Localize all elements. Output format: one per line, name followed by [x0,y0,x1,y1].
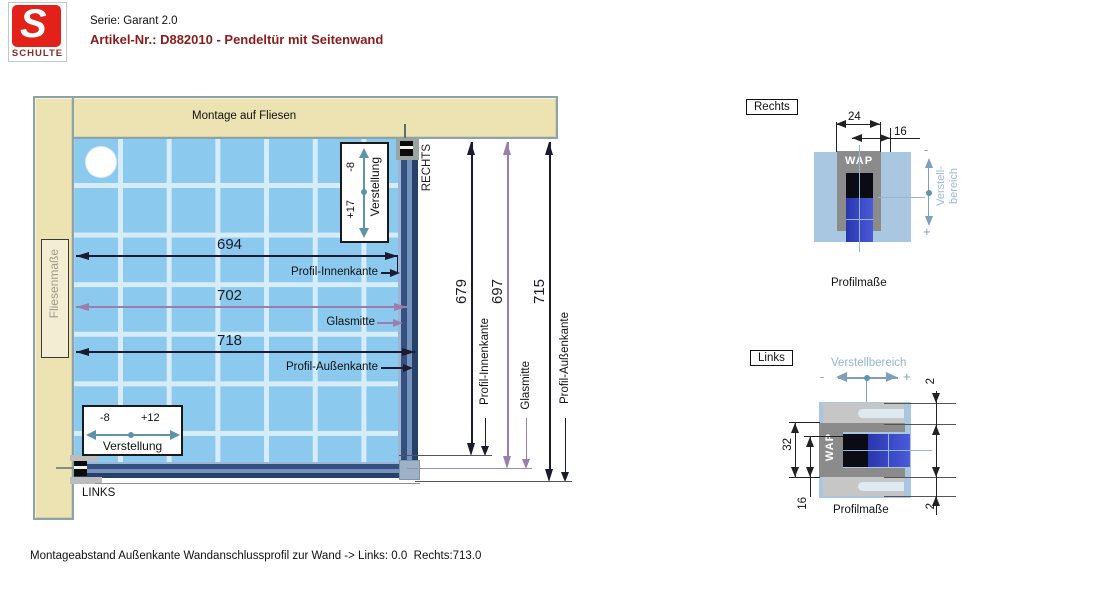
range-minus: - [820,369,824,384]
adjust-dot-icon [361,189,367,195]
dim-width-outer-line [76,351,415,353]
adjustment-box-bottom-profile: -8 +12 Verstellung [82,405,183,456]
range-plus: + [923,224,931,239]
dim-height-inner-label: Profil-Innenkante [479,318,491,405]
top-wall: Montage auf Fliesen [33,96,558,139]
dim-width-outer-label: Profil-Außenkante [246,361,378,373]
adjust-label: Verstellung [368,157,382,216]
adjust-dot-icon [128,432,134,438]
adjust-label: Verstellung [84,439,181,453]
extension-line [884,477,956,478]
side-label-rechts: RECHTS [421,144,433,191]
mounting-distance-note: Montageabstand Außenkante Wandanschlussp… [30,550,481,562]
drawing-page: S SCHULTE Serie: Garant 2.0 Artikel-Nr.:… [0,0,1116,592]
center-line [888,434,889,467]
range-connector-line [878,197,925,198]
center-line [846,219,873,220]
dim-width-glass-value: 702 [217,287,242,304]
dim-gap-top-value: 2 [925,378,937,384]
wall-profile-bottom [74,462,419,478]
arrow-down-icon [359,228,369,238]
dim-arrowhead-icon [76,252,89,260]
arrow-right-icon [393,319,403,327]
dim-arrowhead-icon [467,142,475,155]
dim-tick [890,128,891,152]
extension-line [884,496,956,497]
arrow-up-icon [925,158,933,168]
dim-arrowhead-icon [545,142,553,155]
dim-arrowhead-icon [76,303,89,311]
dim-extension [810,477,811,497]
label-arrow-line [381,272,390,274]
dim-arrowhead-icon [880,134,890,142]
tile-dimension-box: Fliesenmaße [41,239,69,358]
dim-arrowhead-icon [870,120,880,128]
extension-line [399,455,492,456]
dim-gap-bottom-value: 2 [925,503,937,509]
dim-16-value: 16 [797,497,809,510]
center-line [859,145,860,252]
dim-width-glass-label: Glasmitte [260,316,375,328]
dim-arrowhead-icon [791,423,799,433]
left-clamp-icon [74,461,87,476]
schulte-s-icon: S [12,5,61,47]
dim-arrowhead-icon [394,303,407,311]
dim-arrowhead-icon [806,437,814,447]
top-wall-label: Montage auf Fliesen [192,110,296,122]
dim-arrowhead-icon [503,142,511,155]
seal-slot [858,482,904,491]
label-arrow-line [377,322,393,324]
dim-arrowhead-icon [791,467,799,477]
dim-arrowhead-icon [806,467,814,477]
dim-arrowhead-icon [932,467,940,477]
dim-arrowhead-icon [76,348,89,356]
detail-rechts-caption: Profilmaße [831,277,887,289]
dim-height-glass-label: Glasmitte [520,361,532,410]
extension-line [407,468,532,469]
tile-dimension-label: Fliesenmaße [47,249,61,318]
dim-height-glass-value: 697 [489,279,506,304]
dim-height-inner-value: 679 [453,279,470,304]
dim-height-inner-line [471,142,473,444]
dim-width-inner-value: 694 [217,236,242,253]
detail-links-profile-label: WAP [824,433,836,461]
dim-height-outer-line [549,142,551,470]
profile-corner-connector [399,460,420,480]
range-label: Verstell-bereich [935,149,963,223]
shower-head-icon [86,147,116,177]
dim-arrowhead-icon [852,134,862,142]
logo-letter: S [20,5,47,47]
series-label: Serie: Garant 2.0 [90,15,178,27]
arrow-right-icon [403,364,413,372]
wall-tick [56,467,74,469]
logo-brand-text: SCHULTE [9,48,66,59]
schulte-logo: S SCHULTE [8,2,67,62]
adjustment-box-right-profile: -8 +17 Verstellung [340,142,389,243]
label-arrow-line [485,418,486,446]
extension-line [884,424,956,425]
dim-width-inner-label: Profil-Innenkante [252,266,378,278]
detail-links-title: Links [750,350,793,366]
label-arrow-line [526,418,527,459]
adjust-minus-value: -8 [100,412,110,424]
profile-top-clamp-icon [400,141,413,156]
detail-links-caption: Profilmaße [833,504,889,516]
dim-tick [789,477,820,478]
dim-height-outer-label: Profil-Außenkante [559,312,571,404]
detail-rechts-title: Rechts [746,99,798,115]
arrow-right-icon [886,372,897,382]
seal-slot [858,409,904,418]
dim-arrowhead-icon [932,393,940,403]
label-arrow-line [565,418,566,472]
dim-arrowhead-icon [932,425,940,435]
extension-line [884,403,956,404]
dim-height-glass-line [507,142,509,457]
range-dot-icon [926,190,932,196]
side-label-links: LINKS [82,487,115,499]
dim-arrowhead-icon [402,348,415,356]
dim-height-outer-value: 715 [531,279,548,304]
article-title: Artikel-Nr.: D882010 - Pendeltür mit Sei… [90,32,383,47]
arrow-right-icon [390,269,400,277]
range-plus: + [903,369,911,384]
dim-32-value: 32 [782,438,794,451]
profile-top-tick [404,124,406,139]
dim-arrowhead-icon [836,120,846,128]
floor-line [95,483,420,484]
dim-width-glass-line [76,306,407,308]
adjust-minus-value: -8 [345,162,357,172]
adjust-plus-value: +12 [141,412,160,424]
dim-24-value: 24 [848,111,861,123]
dim-16-value: 16 [894,126,907,138]
label-arrow-line [381,367,403,369]
range-minus: - [924,142,928,157]
range-dot-icon [864,375,870,381]
extension-line [415,481,572,482]
range-label: Verstellbereich [831,357,906,369]
dim-width-inner-line [76,255,398,257]
dim-width-outer-value: 718 [217,332,242,349]
adjust-plus-value: +17 [345,200,357,219]
